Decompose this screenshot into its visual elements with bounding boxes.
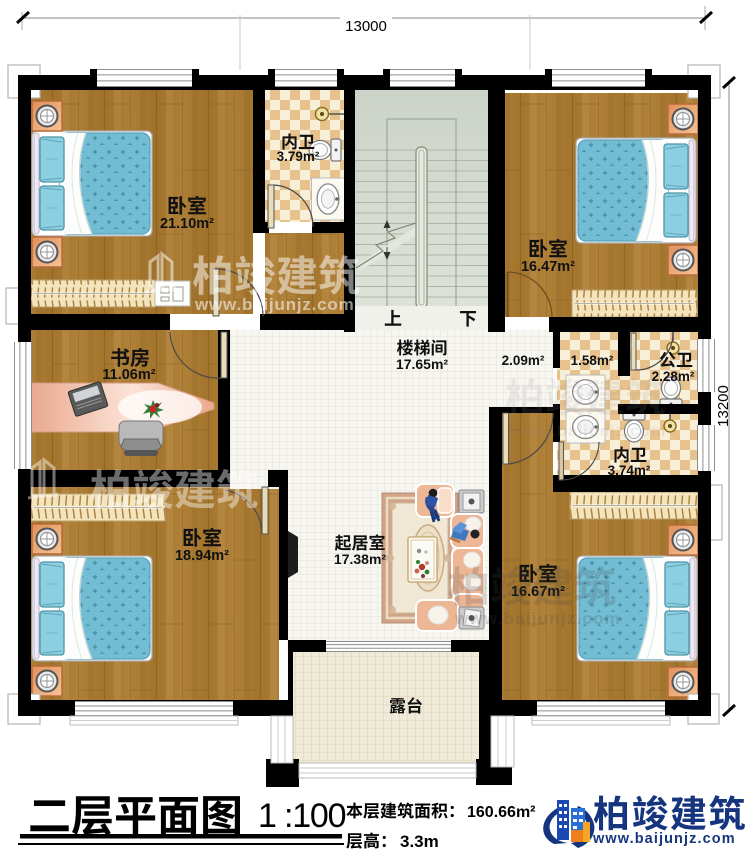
svg-text:160.66m²: 160.66m²	[467, 804, 536, 821]
svg-text:18.94m²: 18.94m²	[175, 548, 229, 564]
svg-text:11.06m²: 11.06m²	[102, 367, 155, 383]
svg-text:1 :100: 1 :100	[258, 797, 346, 835]
svg-text:2.28m²: 2.28m²	[652, 369, 695, 384]
svg-text:2.09m²: 2.09m²	[502, 353, 545, 368]
svg-text:16.47m²: 16.47m²	[521, 259, 575, 275]
svg-text:17.38m²: 17.38m²	[334, 551, 386, 567]
svg-text:www.baijunjz.com: www.baijunjz.com	[454, 609, 621, 628]
svg-text:www.baijunjz.com: www.baijunjz.com	[194, 295, 355, 314]
svg-text:13000: 13000	[345, 18, 387, 35]
svg-text:www.baijunjz.com: www.baijunjz.com	[511, 423, 666, 440]
svg-text:17.65m²: 17.65m²	[396, 356, 448, 372]
svg-text:3.79m²: 3.79m²	[277, 149, 320, 164]
svg-text:www.baijunjz.com: www.baijunjz.com	[592, 831, 736, 847]
svg-text:3.3m: 3.3m	[400, 832, 439, 851]
svg-text:1.58m²: 1.58m²	[571, 353, 614, 368]
svg-text:21.10m²: 21.10m²	[160, 216, 214, 232]
svg-text:13200: 13200	[715, 385, 732, 427]
svg-text:3.74m²: 3.74m²	[608, 463, 651, 478]
